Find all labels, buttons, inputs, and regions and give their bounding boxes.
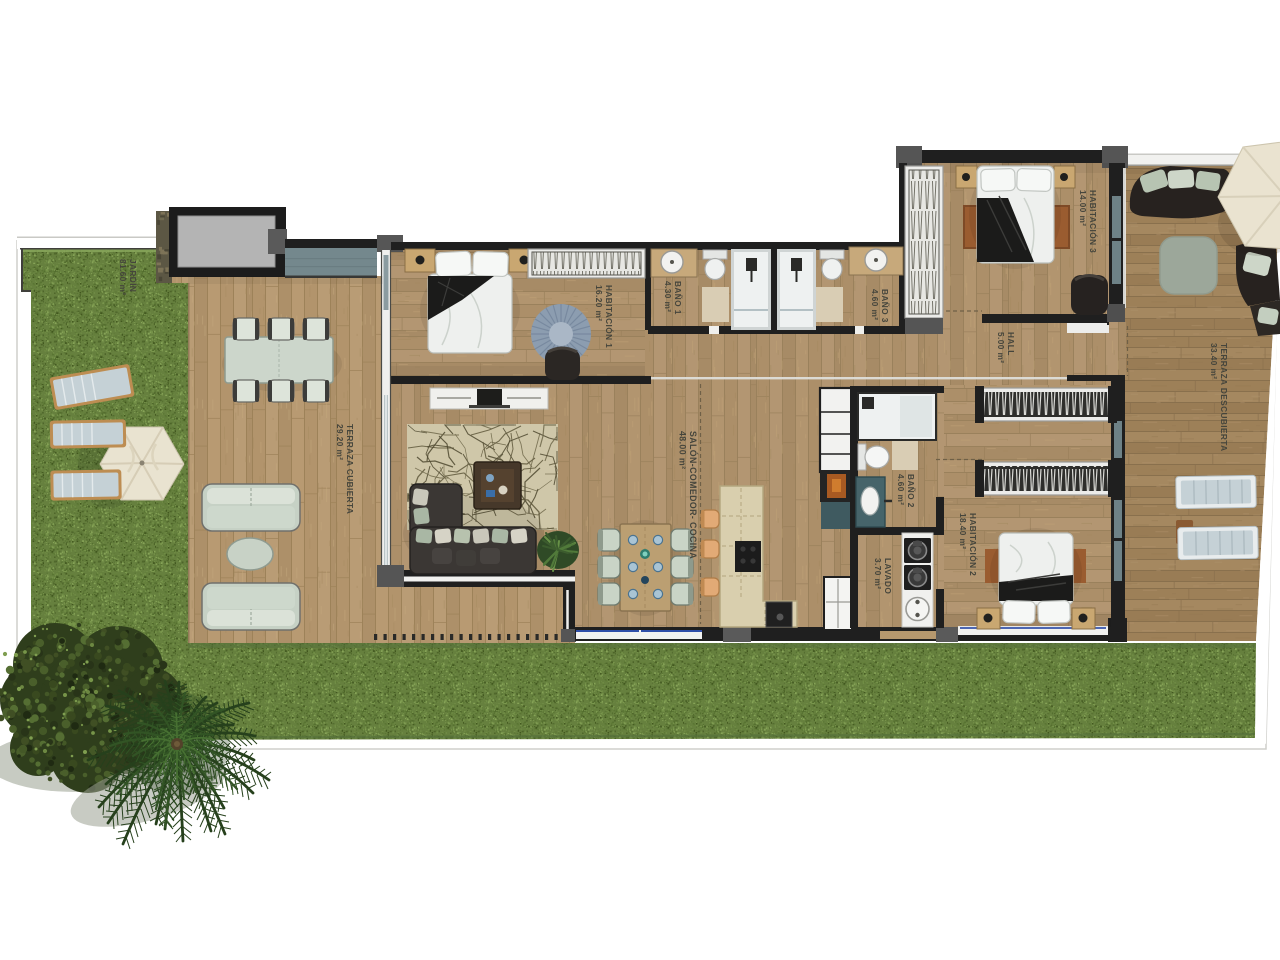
svg-text:BAÑO 1: BAÑO 1	[673, 281, 683, 315]
svg-text:4.60 m²: 4.60 m²	[896, 474, 906, 505]
svg-text:48.00 m²: 48.00 m²	[678, 431, 688, 469]
svg-text:JARDÍN: JARDÍN	[128, 259, 138, 292]
svg-text:BAÑO 3: BAÑO 3	[880, 289, 890, 323]
svg-text:4.30 m²: 4.30 m²	[663, 281, 673, 312]
svg-text:BAÑO 2: BAÑO 2	[906, 474, 916, 508]
svg-text:TERRAZA CUBIERTA: TERRAZA CUBIERTA	[345, 424, 355, 514]
svg-text:TERRAZA DESCUBIERTA: TERRAZA DESCUBIERTA	[1219, 343, 1229, 452]
svg-text:3.70 m²: 3.70 m²	[873, 558, 883, 589]
svg-text:HABITACIÓN 3: HABITACIÓN 3	[1088, 190, 1099, 253]
svg-text:14.00 m²: 14.00 m²	[1078, 190, 1088, 226]
svg-text:18.40 m²: 18.40 m²	[958, 513, 968, 549]
svg-text:16.20 m²: 16.20 m²	[594, 285, 604, 321]
svg-text:HALL: HALL	[1006, 332, 1016, 356]
svg-text:SALÓN-COMEDOR- COCINA: SALÓN-COMEDOR- COCINA	[688, 431, 699, 559]
svg-text:29.20 m²: 29.20 m²	[335, 424, 345, 460]
svg-text:5.00 m²: 5.00 m²	[996, 332, 1006, 363]
svg-text:HABITACIÓN 2: HABITACIÓN 2	[968, 513, 979, 576]
svg-text:HABITACIÓN 1: HABITACIÓN 1	[604, 285, 615, 348]
svg-text:LAVADO: LAVADO	[883, 558, 893, 594]
svg-text:81.60 m²: 81.60 m²	[118, 259, 128, 295]
svg-text:4.60 m²: 4.60 m²	[870, 289, 880, 320]
svg-text:33.40 m²: 33.40 m²	[1209, 343, 1219, 379]
